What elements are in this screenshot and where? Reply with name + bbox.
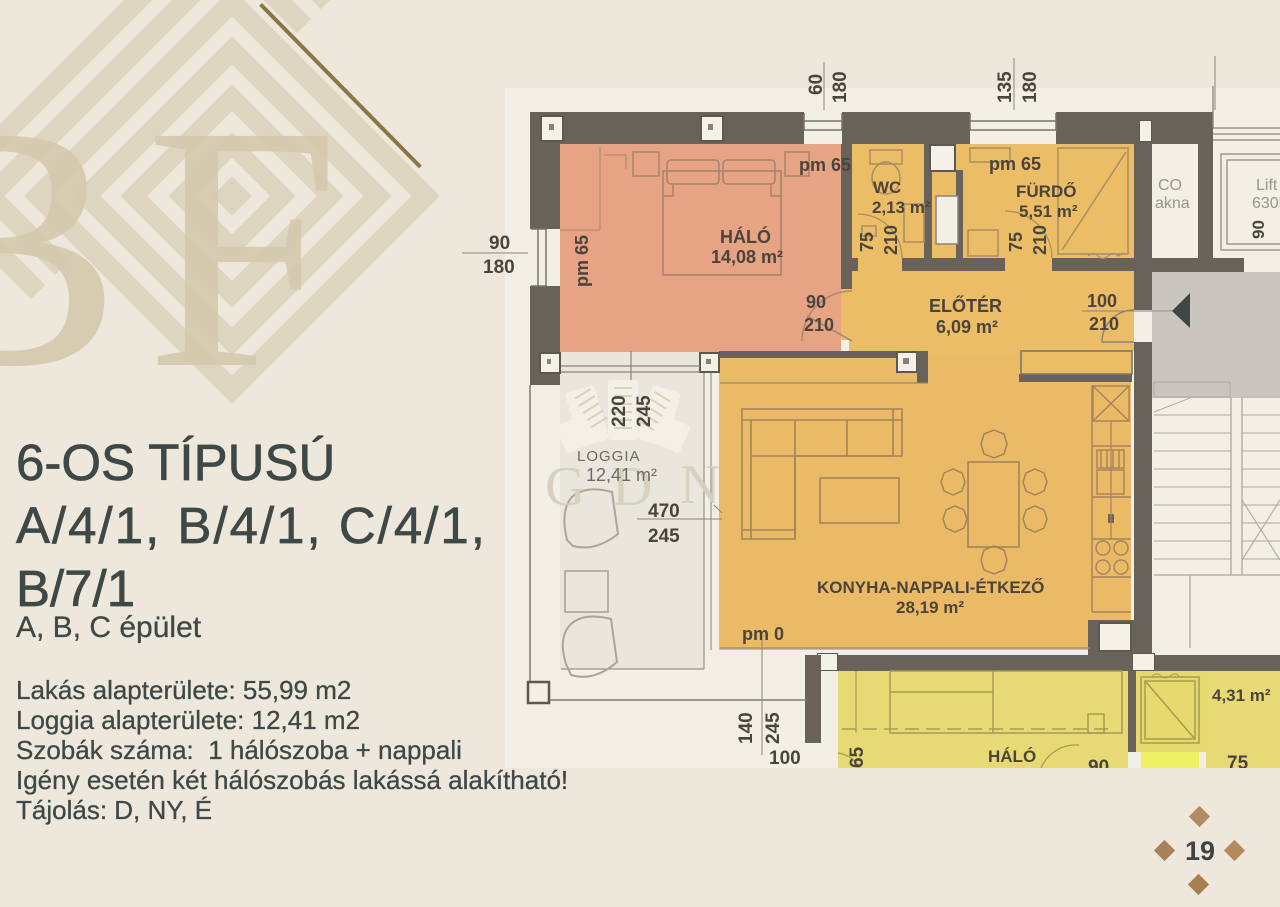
svg-text:N: N (680, 454, 720, 516)
svg-text:G: G (545, 456, 585, 518)
